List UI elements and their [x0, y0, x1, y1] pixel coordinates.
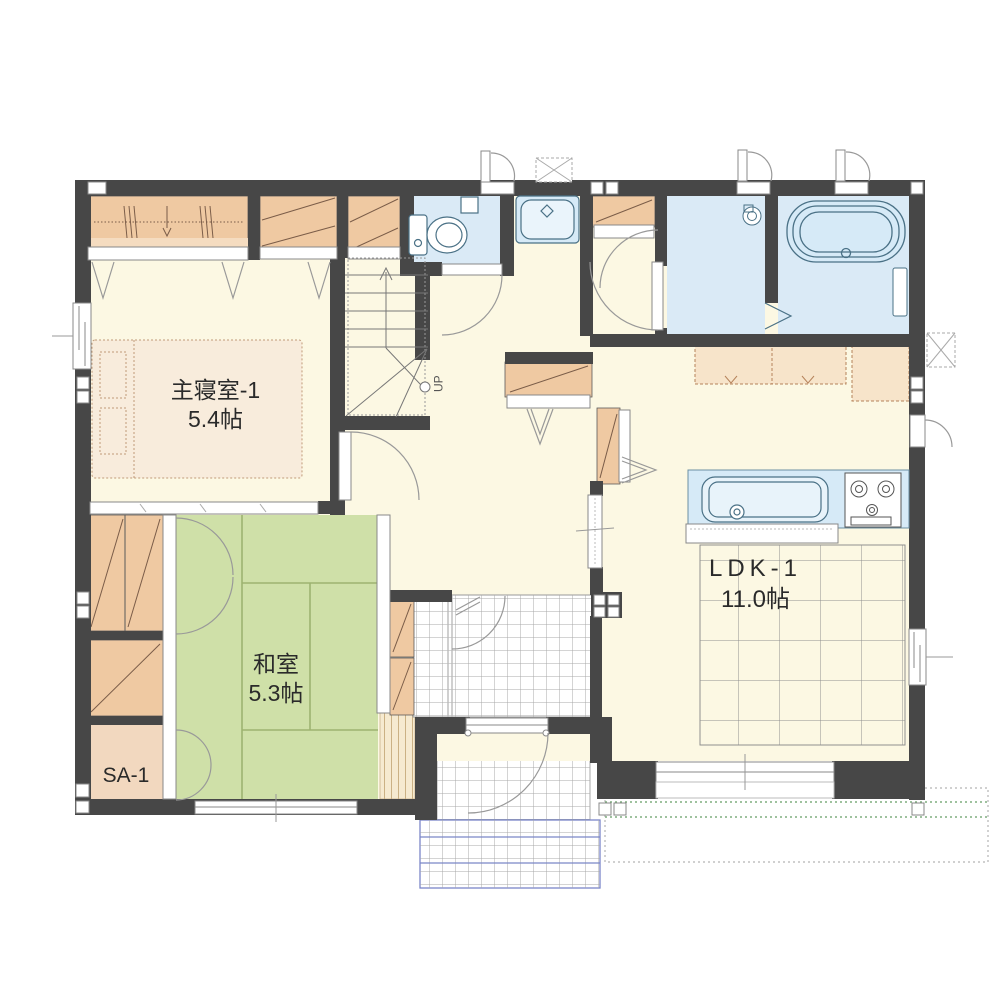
closet-track — [507, 395, 590, 408]
vent-box — [927, 333, 955, 367]
gas-stove — [845, 473, 901, 527]
closet-track — [88, 247, 248, 260]
closet-track — [163, 515, 176, 799]
shelf-closet — [260, 196, 337, 248]
column-marker — [88, 182, 106, 194]
outswing-door — [835, 150, 868, 194]
washbasin — [516, 196, 579, 243]
wood-deck-outline — [605, 788, 988, 862]
sliding-window — [909, 629, 953, 685]
outswing-arc — [846, 152, 870, 181]
floor-plan-drawing — [0, 0, 1000, 1000]
closet-track — [348, 247, 400, 259]
tatami-mats — [176, 515, 378, 799]
shelf-closet — [348, 196, 400, 250]
counter-overhang — [686, 524, 838, 543]
sliding-window — [52, 303, 91, 369]
sliding-partition — [90, 502, 318, 514]
bathtub — [787, 201, 905, 262]
entrance-door — [465, 718, 549, 736]
kitchen-sink — [702, 477, 828, 522]
wall-cabinet — [852, 343, 909, 401]
outswing-arc — [491, 153, 515, 181]
stairs-start-marker — [420, 382, 430, 392]
outswing-door — [481, 151, 514, 194]
floor-plan: 主寝室-1 5.4帖 和室 5.3帖 LDK-1 11.0帖 SA-1 UP — [0, 0, 1000, 1000]
outswing-door — [737, 150, 770, 194]
door-leaf — [442, 264, 502, 275]
bed — [92, 340, 302, 478]
toilet-shelf — [461, 197, 478, 213]
wood-floor-strip — [380, 713, 415, 799]
wall-cabinet — [695, 343, 846, 384]
closet-track — [260, 247, 337, 259]
back-door-frame — [910, 415, 925, 447]
ldk-floor-grid — [700, 545, 905, 745]
back-door-arc — [925, 420, 952, 447]
vent-box — [536, 158, 572, 182]
door-leaf — [339, 432, 351, 500]
sliding-door-track — [377, 515, 390, 713]
door-leaf — [652, 262, 663, 330]
storage-sa-floor — [88, 725, 163, 799]
closet-track — [619, 410, 630, 482]
outswing-arc — [748, 152, 772, 181]
bath-counter — [893, 268, 907, 316]
